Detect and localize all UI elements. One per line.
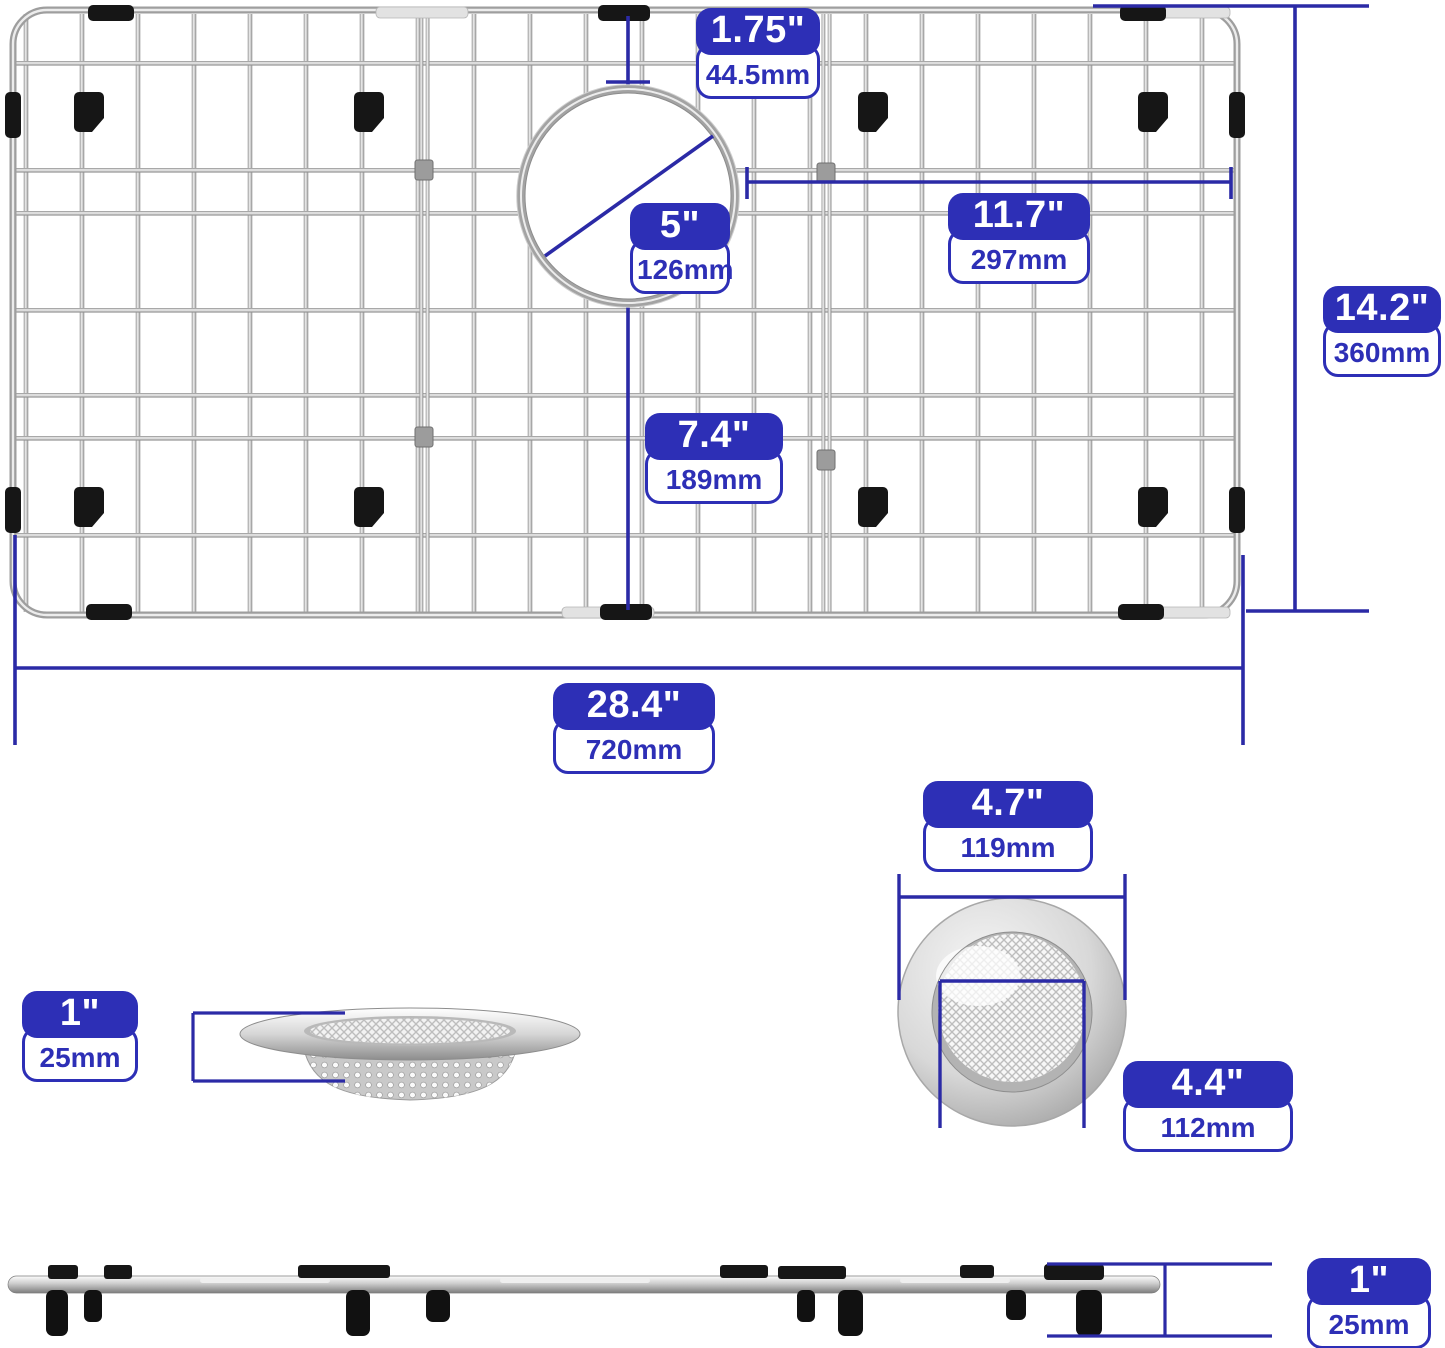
grid-side-profile-view: [8, 1264, 1160, 1336]
dim-label-grid-width: 28.4" 720mm: [553, 683, 715, 774]
dim-inches-value: 7.4": [645, 413, 783, 460]
strainer-side-view: [240, 1008, 580, 1100]
dim-inches-value: 1.75": [696, 8, 820, 55]
strainer-opening-mesh: [310, 1019, 510, 1044]
dim-label-grid-depth: 14.2" 360mm: [1323, 286, 1441, 377]
dim-inches-value: 4.4": [1123, 1061, 1293, 1108]
strainer-top-view: [898, 898, 1126, 1126]
dim-inches-value: 14.2": [1323, 286, 1441, 333]
dim-inches-value: 4.7": [923, 781, 1093, 828]
dim-inches-value: 1": [1307, 1258, 1431, 1305]
dim-label-strainer-outer-diameter: 4.7" 119mm: [923, 781, 1093, 872]
dim-label-drain-to-bottom: 7.4" 189mm: [645, 413, 783, 504]
dim-label-strainer-inner-diameter: 4.4" 112mm: [1123, 1061, 1293, 1152]
dim-inches-value: 11.7": [948, 193, 1090, 240]
sink-grid-top-view: [5, 5, 1245, 620]
product-dimension-image: 1.75" 44.5mm 5" 126mm 11.7" 297mm 14.2" …: [0, 0, 1445, 1348]
dim-inches-value: 1": [22, 991, 138, 1038]
dim-label-drain-diameter: 5" 126mm: [630, 203, 730, 294]
strainer-mesh-highlight: [936, 946, 1020, 1006]
grid-profile-feet: [46, 1290, 1102, 1336]
dim-label-drain-to-right: 11.7" 297mm: [948, 193, 1090, 284]
dim-label-grid-profile-height: 1" 25mm: [1307, 1258, 1431, 1348]
dim-inches-value: 5": [630, 203, 730, 250]
dim-label-strainer-height: 1" 25mm: [22, 991, 138, 1082]
dim-label-drain-offset-top: 1.75" 44.5mm: [696, 8, 820, 99]
dim-inches-value: 28.4": [553, 683, 715, 730]
